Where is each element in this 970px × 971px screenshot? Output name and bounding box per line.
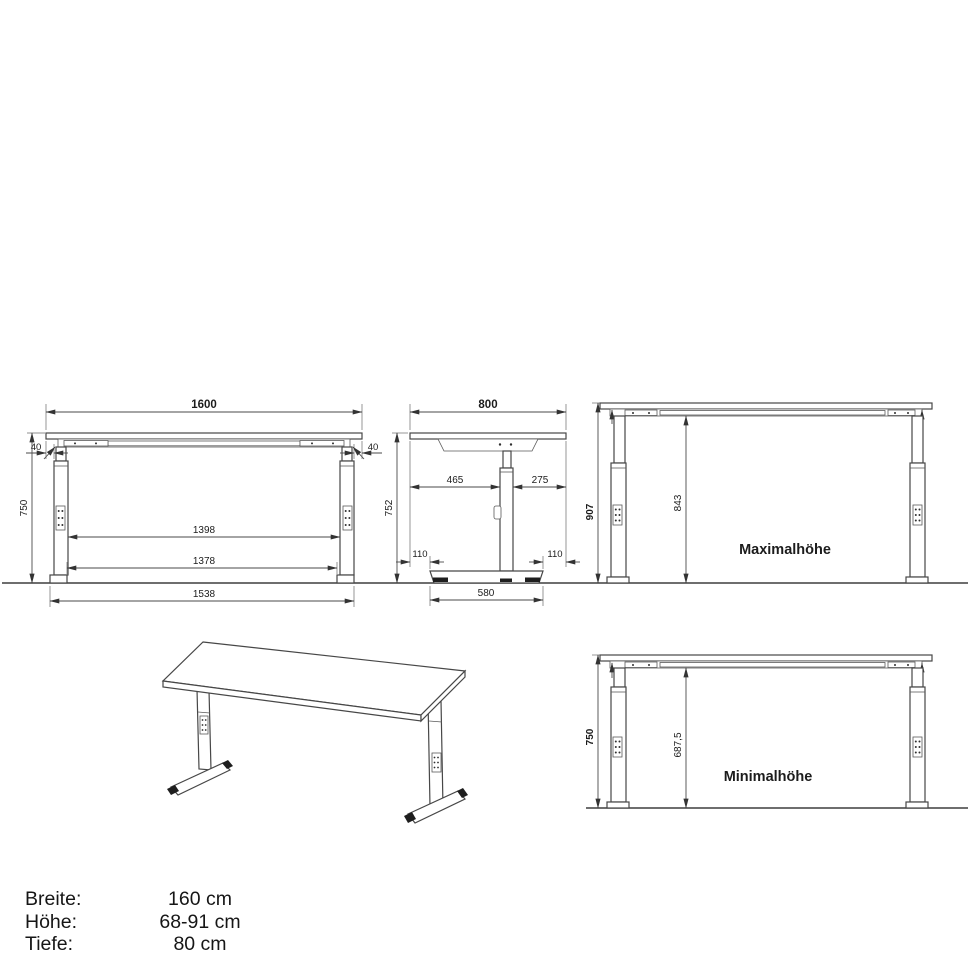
dim-label-687-5: 687,5 <box>673 732 684 757</box>
spec-label-hoehe: Höhe: <box>25 911 130 934</box>
leg-foot <box>50 575 67 583</box>
persp-left-leg <box>167 689 233 795</box>
dim-side-depth: 800 <box>410 399 566 430</box>
dim-max-clearance: 843 <box>673 416 686 583</box>
spec-label-tiefe: Tiefe: <box>25 933 130 956</box>
dim-label-750-front: 750 <box>19 499 30 516</box>
dim-label-752: 752 <box>384 499 395 516</box>
front-left-leg <box>50 447 68 583</box>
dim-label-1378: 1378 <box>193 556 216 567</box>
leg-bracket-plate <box>56 506 65 530</box>
front-frame-bracket-left <box>64 441 108 447</box>
dim-label-750-min: 750 <box>585 728 596 745</box>
technical-drawing-page: 1600 40 40 750 1398 <box>0 0 970 971</box>
side-column <box>500 468 513 571</box>
dim-label-40-right: 40 <box>368 442 379 453</box>
leg-bracket-plate <box>432 753 441 772</box>
dim-label-1398: 1398 <box>193 525 216 536</box>
min-height-view: 750 687,5 Minimalhöhe <box>585 655 968 808</box>
leg-foot <box>906 577 928 583</box>
side-view: 800 465 275 752 110 110 <box>384 399 580 606</box>
dim-label-1600: 1600 <box>191 399 217 411</box>
perspective-view <box>163 642 468 823</box>
dim-front-width: 1600 <box>46 399 362 430</box>
leg-foot <box>337 575 354 583</box>
leg-bracket-plate <box>200 716 208 734</box>
front-view: 1600 40 40 750 1398 <box>19 399 382 607</box>
dim-label-1538: 1538 <box>193 589 216 600</box>
max-view-label: Maximalhöhe <box>739 542 831 558</box>
dim-side-overhangs: 465 275 <box>410 441 566 567</box>
spec-row-tiefe: Tiefe: 80 cm <box>25 933 270 956</box>
dim-label-275: 275 <box>532 475 549 486</box>
dim-label-465: 465 <box>447 475 464 486</box>
max-left-leg <box>607 416 629 583</box>
dim-label-110-right: 110 <box>547 549 562 560</box>
dim-label-110-left: 110 <box>412 549 427 560</box>
dim-front-height: 750 <box>19 433 45 583</box>
dim-label-843: 843 <box>673 494 684 511</box>
dim-side-foot-length: 580 <box>430 586 543 606</box>
leg-bracket-plate <box>343 506 352 530</box>
max-right-leg <box>906 416 928 583</box>
min-view-label: Minimalhöhe <box>724 769 813 785</box>
leg-bracket-plate <box>913 737 922 757</box>
dim-max-total-height: 907 <box>585 403 600 583</box>
dim-side-foot-offsets: 110 110 <box>396 549 580 569</box>
dim-side-height: 752 <box>384 433 408 583</box>
dim-front-foot-span: 1538 <box>50 586 354 607</box>
front-tabletop <box>46 433 362 439</box>
side-mount-bracket <box>438 439 538 451</box>
leg-bracket-plate <box>913 505 922 525</box>
spec-row-hoehe: Höhe: 68-91 cm <box>25 911 270 934</box>
side-handle <box>494 506 501 519</box>
spec-row-breite: Breite: 160 cm <box>25 888 270 911</box>
dim-label-580: 580 <box>478 588 495 599</box>
spec-table: Breite: 160 cm Höhe: 68-91 cm Tiefe: 80 … <box>25 888 270 956</box>
dim-min-total-height: 750 <box>585 655 600 808</box>
min-right-leg <box>906 668 928 808</box>
leg-foot <box>906 802 928 808</box>
dim-min-clearance: 687,5 <box>673 668 686 808</box>
min-left-leg <box>607 668 629 808</box>
spec-value-hoehe: 68-91 cm <box>130 911 270 934</box>
front-frame-bracket-right <box>300 441 344 447</box>
spec-value-breite: 160 cm <box>130 888 270 911</box>
desk-dimension-drawing: 1600 40 40 750 1398 <box>0 0 970 971</box>
leg-bracket-plate <box>613 737 622 757</box>
side-tabletop <box>410 433 566 439</box>
leg-bracket-plate <box>613 505 622 525</box>
side-column-upper <box>503 451 511 468</box>
dim-front-inner-width: 1398 <box>68 525 340 537</box>
dim-label-907: 907 <box>585 503 596 520</box>
front-right-leg <box>337 447 354 583</box>
max-height-view: 907 843 Maximalhöhe <box>585 403 932 583</box>
leg-foot <box>607 802 629 808</box>
dim-label-800: 800 <box>478 399 497 411</box>
dim-front-leg-inner-width: 1378 <box>67 556 337 574</box>
spec-label-breite: Breite: <box>25 888 130 911</box>
spec-value-tiefe: 80 cm <box>130 933 270 956</box>
min-tabletop <box>600 655 932 661</box>
leg-foot <box>607 577 629 583</box>
max-tabletop <box>600 403 932 409</box>
